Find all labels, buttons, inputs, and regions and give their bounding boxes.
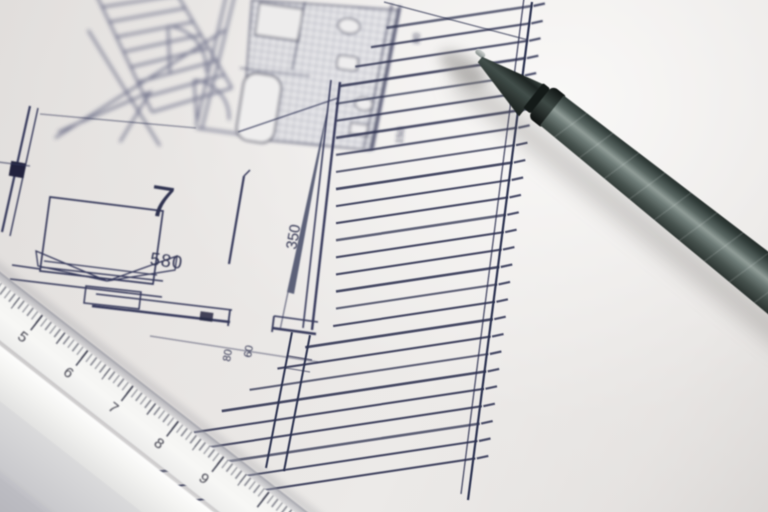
deck-board [492,334,504,337]
deck-board [477,456,489,459]
deck-board [490,352,502,355]
deck-board [387,6,532,28]
deck-board [336,163,512,189]
bathroom: 80 150 [235,0,423,150]
deck-board [483,404,495,407]
photo-scene: 80 150 7 [0,0,768,512]
shower-tray [255,3,303,41]
deck-board [514,160,526,163]
deck-board [507,212,519,215]
deck-board [486,386,498,389]
deck-board [531,21,543,24]
deck-board [533,4,545,7]
deck-board [222,371,486,411]
deck-board [194,389,484,433]
deck-board [481,421,493,424]
deck-board [479,439,491,442]
ruler-number-6: 6 [60,364,77,383]
deck-board [488,369,500,372]
ruler-number-7: 7 [105,399,122,418]
deck-board [496,299,508,302]
deck-board [250,354,489,390]
room-number-label: 7 [146,176,178,228]
deck-board [529,38,541,41]
deck-board [305,319,492,347]
dimension-top-80-label: 80 [411,33,423,45]
deck-board [505,230,516,233]
dimension-80-label: 80 [221,348,235,362]
deck-board [512,178,524,181]
ruler-number-5: 5 [14,328,31,347]
dimension-60-label: 60 [242,344,256,358]
deck-board [503,247,515,250]
toilet-cistern [336,55,359,72]
pen-needle-tip [474,48,486,60]
ruler-number-9: 9 [195,469,212,488]
deck-board [501,265,513,268]
door-leaf [229,176,244,264]
deck-board [494,317,506,320]
window-symbol [36,251,107,281]
deck-board [499,282,511,285]
deck-board [509,195,521,198]
ruler-number-8: 8 [150,434,167,453]
